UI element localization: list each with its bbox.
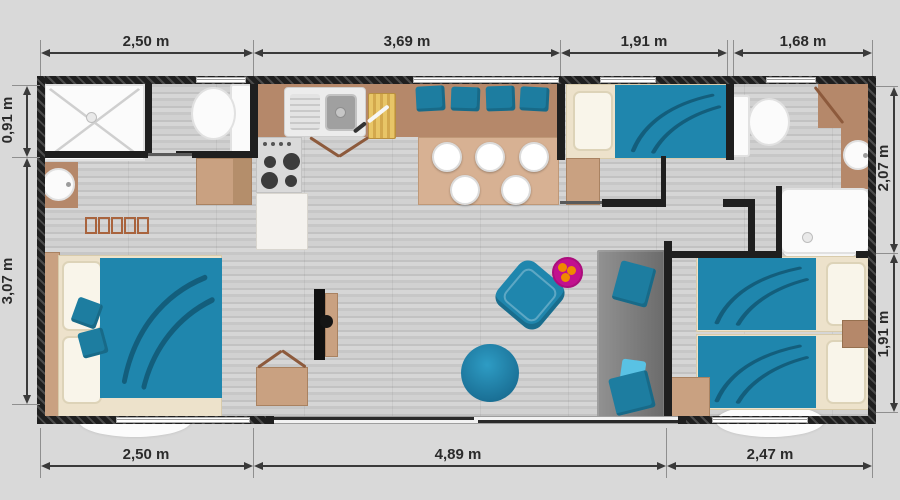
wall xyxy=(664,241,672,420)
single-bed-2-duvet xyxy=(615,85,728,158)
bench-cushion xyxy=(415,85,445,111)
exterior-wall-right xyxy=(868,76,876,424)
witness-line xyxy=(876,412,898,413)
dim-arrow-icon xyxy=(890,254,898,263)
wall xyxy=(44,151,148,158)
dim-arrow-icon xyxy=(551,49,560,57)
twin-bed-1-duvet xyxy=(698,258,816,330)
radiator-cell xyxy=(98,217,110,234)
wall xyxy=(145,83,152,153)
dim-arrow-icon xyxy=(718,49,727,57)
plate xyxy=(519,142,549,172)
wardrobe-master xyxy=(196,158,252,205)
window xyxy=(600,77,656,83)
knob-icon xyxy=(271,142,275,146)
wall xyxy=(250,83,258,158)
witness-line xyxy=(12,404,40,405)
bench-cushion xyxy=(451,87,481,112)
floor-plan: 2,50 m 3,69 m 1,91 m 1,68 m 2,50 m 4,89 … xyxy=(0,0,900,500)
dim-label-left-1: 0,91 m xyxy=(0,90,16,150)
witness-line xyxy=(253,428,254,478)
hob xyxy=(256,137,302,193)
radiator xyxy=(85,217,149,234)
dim-label-top-1: 2,50 m xyxy=(116,34,176,50)
dim-arrow-icon xyxy=(890,403,898,412)
door-panel xyxy=(274,417,474,420)
tap-icon xyxy=(66,182,71,187)
dim-line xyxy=(893,93,895,246)
dim-label-top-2: 3,69 m xyxy=(377,34,437,50)
dim-arrow-icon xyxy=(734,49,743,57)
plate xyxy=(475,142,505,172)
drain-icon xyxy=(802,232,813,243)
tv-mount-icon xyxy=(320,315,333,328)
dim-line xyxy=(26,92,28,150)
dim-arrow-icon xyxy=(657,462,666,470)
dim-line xyxy=(48,465,246,467)
drain-icon xyxy=(86,112,97,123)
shower-1 xyxy=(44,84,145,161)
pillow xyxy=(826,340,866,404)
plate xyxy=(432,142,462,172)
radiator-cell xyxy=(124,217,136,234)
toilet-1-bowl xyxy=(191,87,236,140)
window xyxy=(116,417,250,423)
burner-icon xyxy=(285,175,297,187)
dim-label-bottom-1: 2,50 m xyxy=(116,447,176,463)
dim-arrow-icon xyxy=(254,49,263,57)
dim-arrow-icon xyxy=(41,49,50,57)
dim-line xyxy=(48,52,246,54)
radiator-cell xyxy=(111,217,123,234)
duvet-fold-icon xyxy=(615,85,728,158)
pouf xyxy=(461,344,519,402)
witness-line xyxy=(40,40,41,76)
dim-line xyxy=(262,52,552,54)
pillow xyxy=(826,262,866,326)
dim-label-top-4: 1,68 m xyxy=(773,34,833,50)
door-panel xyxy=(478,420,678,423)
twin-bed-2-duvet xyxy=(698,336,816,408)
dim-label-top-3: 1,91 m xyxy=(614,34,674,50)
dim-arrow-icon xyxy=(23,158,31,167)
wardrobe-shelf xyxy=(233,159,251,204)
exterior-wall-left xyxy=(37,76,45,424)
pillow xyxy=(573,91,613,151)
window xyxy=(196,77,246,83)
dim-arrow-icon xyxy=(41,462,50,470)
dim-arrow-icon xyxy=(23,395,31,404)
dim-line xyxy=(893,261,895,406)
duvet-fold-icon xyxy=(100,258,222,398)
dim-arrow-icon xyxy=(23,148,31,157)
window xyxy=(712,417,808,423)
plate xyxy=(450,175,480,205)
dim-line xyxy=(26,165,28,396)
dim-label-right-2: 1,91 m xyxy=(876,304,892,364)
burner-icon xyxy=(264,156,276,168)
fruit-icon xyxy=(558,263,567,272)
dim-arrow-icon xyxy=(667,462,676,470)
bench-cushion xyxy=(486,86,516,112)
tap-icon xyxy=(335,107,346,118)
window xyxy=(413,77,559,83)
door-frame-end xyxy=(266,416,274,424)
dim-label-left-2: 3,07 m xyxy=(0,251,16,311)
wardrobe-bedroom3 xyxy=(668,377,710,419)
dim-arrow-icon xyxy=(244,462,253,470)
drainboard-icon xyxy=(290,94,320,130)
witness-line xyxy=(40,428,41,478)
wall xyxy=(776,186,782,254)
dim-line xyxy=(568,52,718,54)
burner-icon xyxy=(283,153,300,170)
window xyxy=(766,77,816,83)
dim-arrow-icon xyxy=(863,462,872,470)
knob-icon xyxy=(263,142,267,146)
dim-arrow-icon xyxy=(561,49,570,57)
fruit-icon xyxy=(561,273,570,282)
dim-arrow-icon xyxy=(254,462,263,470)
knob-icon xyxy=(287,142,291,146)
base-cabinet xyxy=(256,193,308,250)
dim-arrow-icon xyxy=(890,244,898,253)
duvet-fold-icon xyxy=(698,336,816,408)
witness-line xyxy=(733,40,734,76)
nightstand xyxy=(842,320,870,348)
witness-line xyxy=(872,40,873,76)
wall xyxy=(192,151,253,158)
sliding-door xyxy=(560,201,602,204)
double-bed-duvet xyxy=(100,258,222,398)
burner-icon xyxy=(261,172,278,189)
wardrobe-bedroom2 xyxy=(566,158,600,205)
plate xyxy=(501,175,531,205)
wall xyxy=(726,83,734,160)
dim-arrow-icon xyxy=(863,49,872,57)
wall xyxy=(602,199,666,207)
radiator-cell xyxy=(137,217,149,234)
dim-line xyxy=(741,52,865,54)
shower-2 xyxy=(780,188,870,254)
wall xyxy=(748,199,755,258)
door-leaf xyxy=(661,156,666,202)
knob-icon xyxy=(279,142,283,146)
sideboard xyxy=(256,367,308,406)
toilet-2-bowl xyxy=(748,98,790,146)
bench-cushion xyxy=(519,86,549,111)
witness-line xyxy=(727,40,728,76)
dim-label-bottom-3: 2,47 m xyxy=(740,447,800,463)
witness-line xyxy=(872,428,873,478)
sliding-patio-door xyxy=(266,416,686,424)
dim-label-right-1: 2,07 m xyxy=(876,138,892,198)
dim-arrow-icon xyxy=(23,86,31,95)
witness-line xyxy=(253,40,254,76)
radiator-cell xyxy=(85,217,97,234)
duvet-fold-icon xyxy=(698,258,816,330)
dim-arrow-icon xyxy=(244,49,253,57)
witness-line xyxy=(666,428,667,478)
dim-line xyxy=(674,465,864,467)
dim-arrow-icon xyxy=(890,87,898,96)
shower-tray-icon xyxy=(46,86,143,159)
wall xyxy=(557,83,565,160)
dim-label-bottom-2: 4,89 m xyxy=(428,447,488,463)
dim-line xyxy=(262,465,658,467)
wall xyxy=(667,251,782,258)
witness-line xyxy=(560,40,561,76)
door-frame-end xyxy=(678,416,686,424)
sliding-door xyxy=(148,153,192,156)
